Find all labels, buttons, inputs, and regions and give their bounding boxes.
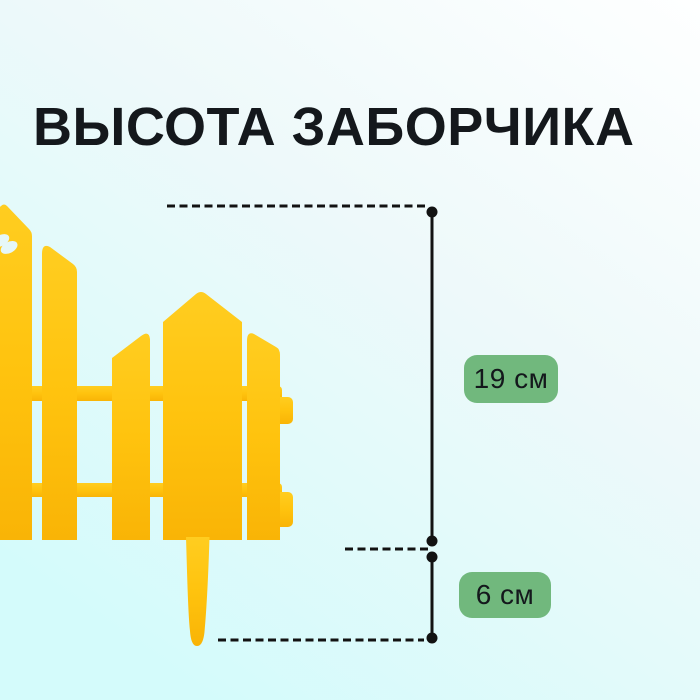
measure-dot-ground-upper <box>427 536 438 547</box>
stake-height-badge: 6 см <box>459 572 551 618</box>
product-infographic: ВЫСОТА ЗАБОРЧИКА <box>0 0 700 700</box>
fence-ground-stake <box>186 537 210 646</box>
measure-dot-top <box>427 207 438 218</box>
fence-measurement-graphic <box>0 0 700 700</box>
yellow-picket-fence <box>0 205 293 647</box>
fence-picket-5 <box>247 333 280 540</box>
fence-height-badge: 19 см <box>464 355 558 403</box>
fence-picket-2 <box>42 246 77 540</box>
fence-picket-1 <box>0 205 32 541</box>
measure-dot-ground-lower <box>427 552 438 563</box>
fence-picket-center-house <box>163 292 242 540</box>
fence-picket-3 <box>112 334 150 540</box>
measure-dot-stake-tip <box>427 633 438 644</box>
